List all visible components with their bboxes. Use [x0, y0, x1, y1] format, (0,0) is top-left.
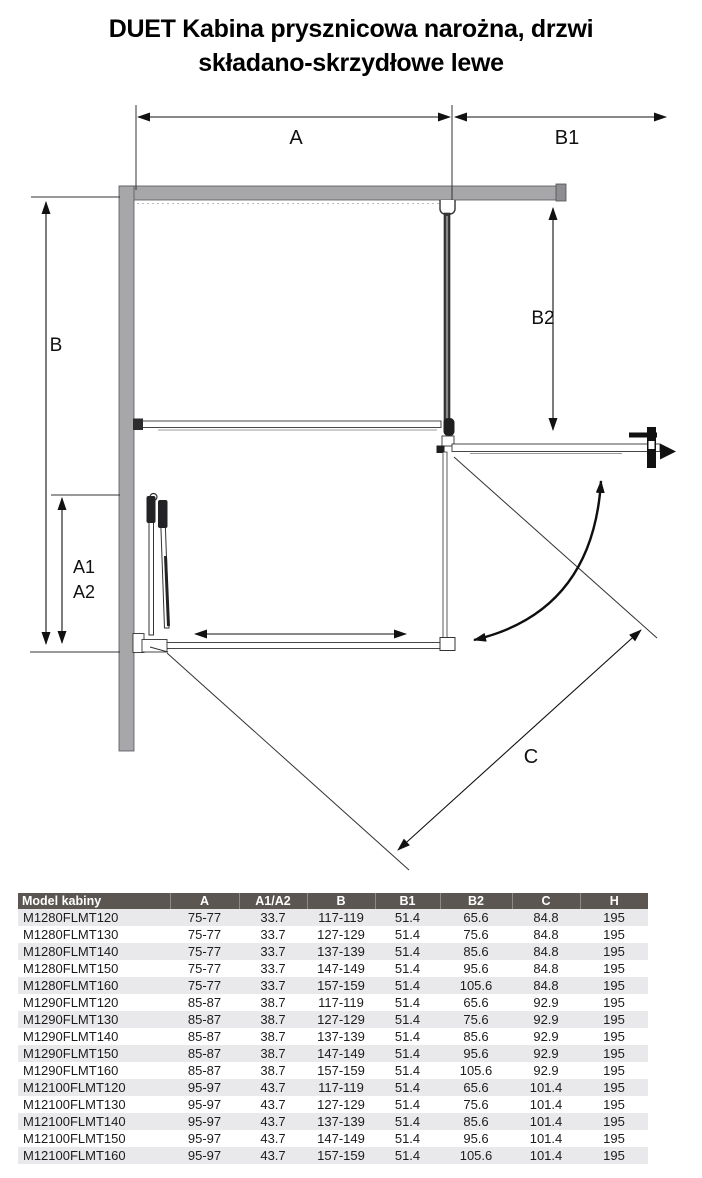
dimension-cell: 75.6	[440, 926, 512, 943]
dimension-cell: 43.7	[239, 1079, 307, 1096]
dimension-cell: 101.4	[512, 1147, 580, 1164]
model-cell: M12100FLMT160	[18, 1147, 170, 1164]
door-tip	[660, 444, 676, 460]
dim-b2-label: B2	[531, 308, 554, 329]
dimension-cell: 95-97	[170, 1079, 239, 1096]
dimension-cell: 65.6	[440, 1079, 512, 1096]
model-cell: M1280FLMT130	[18, 926, 170, 943]
table-row: M1290FLMT14085-8738.7137-13951.485.692.9…	[18, 1028, 648, 1045]
door-swing	[454, 457, 657, 640]
table-row: M12100FLMT16095-9743.7157-15951.4105.610…	[18, 1147, 648, 1164]
dimension-cell: 137-139	[307, 1028, 375, 1045]
wall-top-end-cap	[556, 184, 566, 201]
dim-a1-a2: A1 A2	[30, 495, 120, 652]
wall-top	[120, 186, 557, 200]
column-header-b2: B2	[440, 893, 512, 909]
dimension-cell: 38.7	[239, 1011, 307, 1028]
table-row: M12100FLMT12095-9743.7117-11951.465.6101…	[18, 1079, 648, 1096]
dimension-cell: 51.4	[375, 1113, 440, 1130]
model-cell: M1280FLMT160	[18, 977, 170, 994]
table-row: M12100FLMT13095-9743.7127-12951.475.6101…	[18, 1096, 648, 1113]
fixed-side-panel	[440, 200, 455, 423]
dimension-cell: 38.7	[239, 1028, 307, 1045]
dimension-cell: 95-97	[170, 1096, 239, 1113]
column-header-b: B	[307, 893, 375, 909]
open-door-panel	[452, 427, 676, 468]
dimension-cell: 85-87	[170, 1011, 239, 1028]
dimension-cell: 195	[580, 1028, 648, 1045]
dimension-cell: 95-97	[170, 1113, 239, 1130]
dimension-cell: 95.6	[440, 960, 512, 977]
table-row: M1280FLMT12075-7733.7117-11951.465.684.8…	[18, 909, 648, 926]
dimension-cell: 195	[580, 909, 648, 926]
dimension-cell: 65.6	[440, 994, 512, 1011]
dimension-cell: 43.7	[239, 1130, 307, 1147]
dimension-cell: 85.6	[440, 1113, 512, 1130]
spec-table: Model kabiny A A1/A2 B B1 B2 C H M1280FL…	[18, 893, 648, 1164]
dimension-cell: 38.7	[239, 1045, 307, 1062]
column-header-a: A	[170, 893, 239, 909]
dimension-cell: 51.4	[375, 909, 440, 926]
dimension-cell: 51.4	[375, 926, 440, 943]
dimension-cell: 195	[580, 960, 648, 977]
model-cell: M1280FLMT150	[18, 960, 170, 977]
model-cell: M1290FLMT130	[18, 1011, 170, 1028]
panel-clamp	[440, 200, 455, 214]
folded-door-panels	[147, 494, 170, 636]
dimension-cell: 33.7	[239, 943, 307, 960]
dimension-cell: 75.6	[440, 1011, 512, 1028]
table-row: M1280FLMT15075-7733.7147-14951.495.684.8…	[18, 960, 648, 977]
table-row: M1280FLMT13075-7733.7127-12951.475.684.8…	[18, 926, 648, 943]
dimension-cell: 85-87	[170, 994, 239, 1011]
dimension-cell: 51.4	[375, 977, 440, 994]
column-header-b1: B1	[375, 893, 440, 909]
dimension-cell: 43.7	[239, 1147, 307, 1164]
dimension-cell: 51.4	[375, 994, 440, 1011]
dimension-cell: 43.7	[239, 1113, 307, 1130]
dimension-cell: 195	[580, 1113, 648, 1130]
model-cell: M12100FLMT150	[18, 1130, 170, 1147]
dimension-cell: 95-97	[170, 1130, 239, 1147]
dimension-cell: 101.4	[512, 1130, 580, 1147]
dimension-cell: 95-97	[170, 1147, 239, 1164]
dim-b2: B2	[531, 208, 554, 430]
column-header-model: Model kabiny	[18, 893, 170, 909]
door-diagonal	[454, 457, 657, 638]
dimension-cell: 157-159	[307, 1062, 375, 1079]
dimension-cell: 92.9	[512, 1062, 580, 1079]
tray-edges	[133, 452, 455, 653]
model-cell: M12100FLMT140	[18, 1113, 170, 1130]
dim-a-label: A	[289, 127, 303, 149]
dimension-cell: 195	[580, 1045, 648, 1062]
dimension-cell: 127-129	[307, 926, 375, 943]
dimension-cell: 51.4	[375, 1147, 440, 1164]
table-row: M12100FLMT15095-9743.7147-14951.495.6101…	[18, 1130, 648, 1147]
dimension-cell: 85-87	[170, 1045, 239, 1062]
walls	[119, 184, 566, 751]
model-cell: M1290FLMT150	[18, 1045, 170, 1062]
dimension-cell: 38.7	[239, 1062, 307, 1079]
dimension-cell: 195	[580, 1079, 648, 1096]
column-header-a1a2: A1/A2	[239, 893, 307, 909]
dimension-cell: 75-77	[170, 943, 239, 960]
dimension-cell: 75-77	[170, 926, 239, 943]
dimension-cell: 147-149	[307, 1045, 375, 1062]
dimension-cell: 85-87	[170, 1028, 239, 1045]
dimension-cell: 127-129	[307, 1096, 375, 1113]
dimension-cell: 85.6	[440, 943, 512, 960]
dimension-cell: 157-159	[307, 1147, 375, 1164]
swing-arc	[474, 481, 601, 640]
model-cell: M12100FLMT130	[18, 1096, 170, 1113]
dimension-cell: 33.7	[239, 960, 307, 977]
table-row: M1290FLMT12085-8738.7117-11951.465.692.9…	[18, 994, 648, 1011]
dimension-cell: 195	[580, 994, 648, 1011]
dimension-diagram: A B1 B A1 A2 B2	[0, 0, 702, 890]
dim-b1: B1	[455, 117, 666, 149]
dimension-cell: 85.6	[440, 1028, 512, 1045]
dimension-cell: 84.8	[512, 943, 580, 960]
model-cell: M1290FLMT140	[18, 1028, 170, 1045]
dimension-cell: 195	[580, 943, 648, 960]
column-header-c: C	[512, 893, 580, 909]
wall-left	[119, 186, 134, 751]
model-cell: M1280FLMT140	[18, 943, 170, 960]
dimension-cell: 105.6	[440, 1062, 512, 1079]
dim-c: C	[167, 630, 641, 870]
dimension-cell: 157-159	[307, 977, 375, 994]
dimension-cell: 92.9	[512, 994, 580, 1011]
model-cell: M1290FLMT120	[18, 994, 170, 1011]
dimension-cell: 84.8	[512, 909, 580, 926]
dim-a1-label: A1	[73, 557, 95, 577]
front-edge	[443, 452, 447, 640]
dimension-cell: 127-129	[307, 1011, 375, 1028]
dimension-cell: 75-77	[170, 960, 239, 977]
back-glass-panel	[133, 419, 441, 431]
dimension-cell: 92.9	[512, 1028, 580, 1045]
dim-c-label: C	[524, 746, 538, 768]
dimension-cell: 195	[580, 1062, 648, 1079]
dimension-cell: 195	[580, 1011, 648, 1028]
dimension-cell: 33.7	[239, 977, 307, 994]
table-row: M1280FLMT16075-7733.7157-15951.4105.684.…	[18, 977, 648, 994]
dimension-cell: 51.4	[375, 960, 440, 977]
spec-sheet: DUET Kabina prysznicowa narożna, drzwi s…	[0, 0, 702, 1178]
dimension-cell: 75-77	[170, 909, 239, 926]
dimension-cell: 195	[580, 977, 648, 994]
dimension-cell: 84.8	[512, 977, 580, 994]
dimension-cell: 147-149	[307, 1130, 375, 1147]
dimension-cell: 105.6	[440, 1147, 512, 1164]
dimension-cell: 75-77	[170, 977, 239, 994]
table-row: M12100FLMT14095-9743.7137-13951.485.6101…	[18, 1113, 648, 1130]
column-header-h: H	[580, 893, 648, 909]
dimension-cell: 195	[580, 1130, 648, 1147]
dimension-cell: 137-139	[307, 1113, 375, 1130]
dimension-cell: 33.7	[239, 909, 307, 926]
dimension-cell: 195	[580, 926, 648, 943]
dimension-cell: 137-139	[307, 943, 375, 960]
dimension-cell: 117-119	[307, 994, 375, 1011]
dimension-cell: 147-149	[307, 960, 375, 977]
dimension-cell: 101.4	[512, 1113, 580, 1130]
dimension-cell: 38.7	[239, 994, 307, 1011]
dimension-cell: 33.7	[239, 926, 307, 943]
dimension-cell: 51.4	[375, 1045, 440, 1062]
dimension-cell: 101.4	[512, 1079, 580, 1096]
dimension-cell: 51.4	[375, 1028, 440, 1045]
dimension-cell: 51.4	[375, 1011, 440, 1028]
dimension-cell: 85-87	[170, 1062, 239, 1079]
dimension-cell: 105.6	[440, 977, 512, 994]
model-cell: M1280FLMT120	[18, 909, 170, 926]
table-header: Model kabiny A A1/A2 B B1 B2 C H	[18, 893, 648, 909]
dimension-cell: 101.4	[512, 1096, 580, 1113]
table-row: M1280FLMT14075-7733.7137-13951.485.684.8…	[18, 943, 648, 960]
dimension-cell: 195	[580, 1147, 648, 1164]
dimension-cell: 51.4	[375, 1079, 440, 1096]
table-row: M1290FLMT13085-8738.7127-12951.475.692.9…	[18, 1011, 648, 1028]
tray-front	[165, 643, 443, 649]
table-row: M1290FLMT15085-8738.7147-14951.495.692.9…	[18, 1045, 648, 1062]
dimension-cell: 51.4	[375, 943, 440, 960]
dimension-cell: 92.9	[512, 1045, 580, 1062]
dim-b1-label: B1	[555, 127, 579, 149]
dimension-cell: 65.6	[440, 909, 512, 926]
dim-a2-label: A2	[73, 582, 95, 602]
dimension-cell: 92.9	[512, 1011, 580, 1028]
dimension-cell: 75.6	[440, 1096, 512, 1113]
table-body: M1280FLMT12075-7733.7117-11951.465.684.8…	[18, 909, 648, 1164]
model-cell: M12100FLMT120	[18, 1079, 170, 1096]
model-cell: M1290FLMT160	[18, 1062, 170, 1079]
dimension-cell: 51.4	[375, 1096, 440, 1113]
table-row: M1290FLMT16085-8738.7157-15951.4105.692.…	[18, 1062, 648, 1079]
tray-corner-right	[440, 638, 455, 651]
dimension-cell: 84.8	[512, 926, 580, 943]
dimension-cell: 51.4	[375, 1130, 440, 1147]
dimension-cell: 95.6	[440, 1130, 512, 1147]
dimension-cell: 43.7	[239, 1096, 307, 1113]
dim-b-label: B	[50, 335, 63, 356]
dimension-cell: 95.6	[440, 1045, 512, 1062]
dimension-cell: 117-119	[307, 1079, 375, 1096]
dimension-cell: 117-119	[307, 909, 375, 926]
dimension-cell: 195	[580, 1096, 648, 1113]
dimension-cell: 51.4	[375, 1062, 440, 1079]
dimension-cell: 84.8	[512, 960, 580, 977]
